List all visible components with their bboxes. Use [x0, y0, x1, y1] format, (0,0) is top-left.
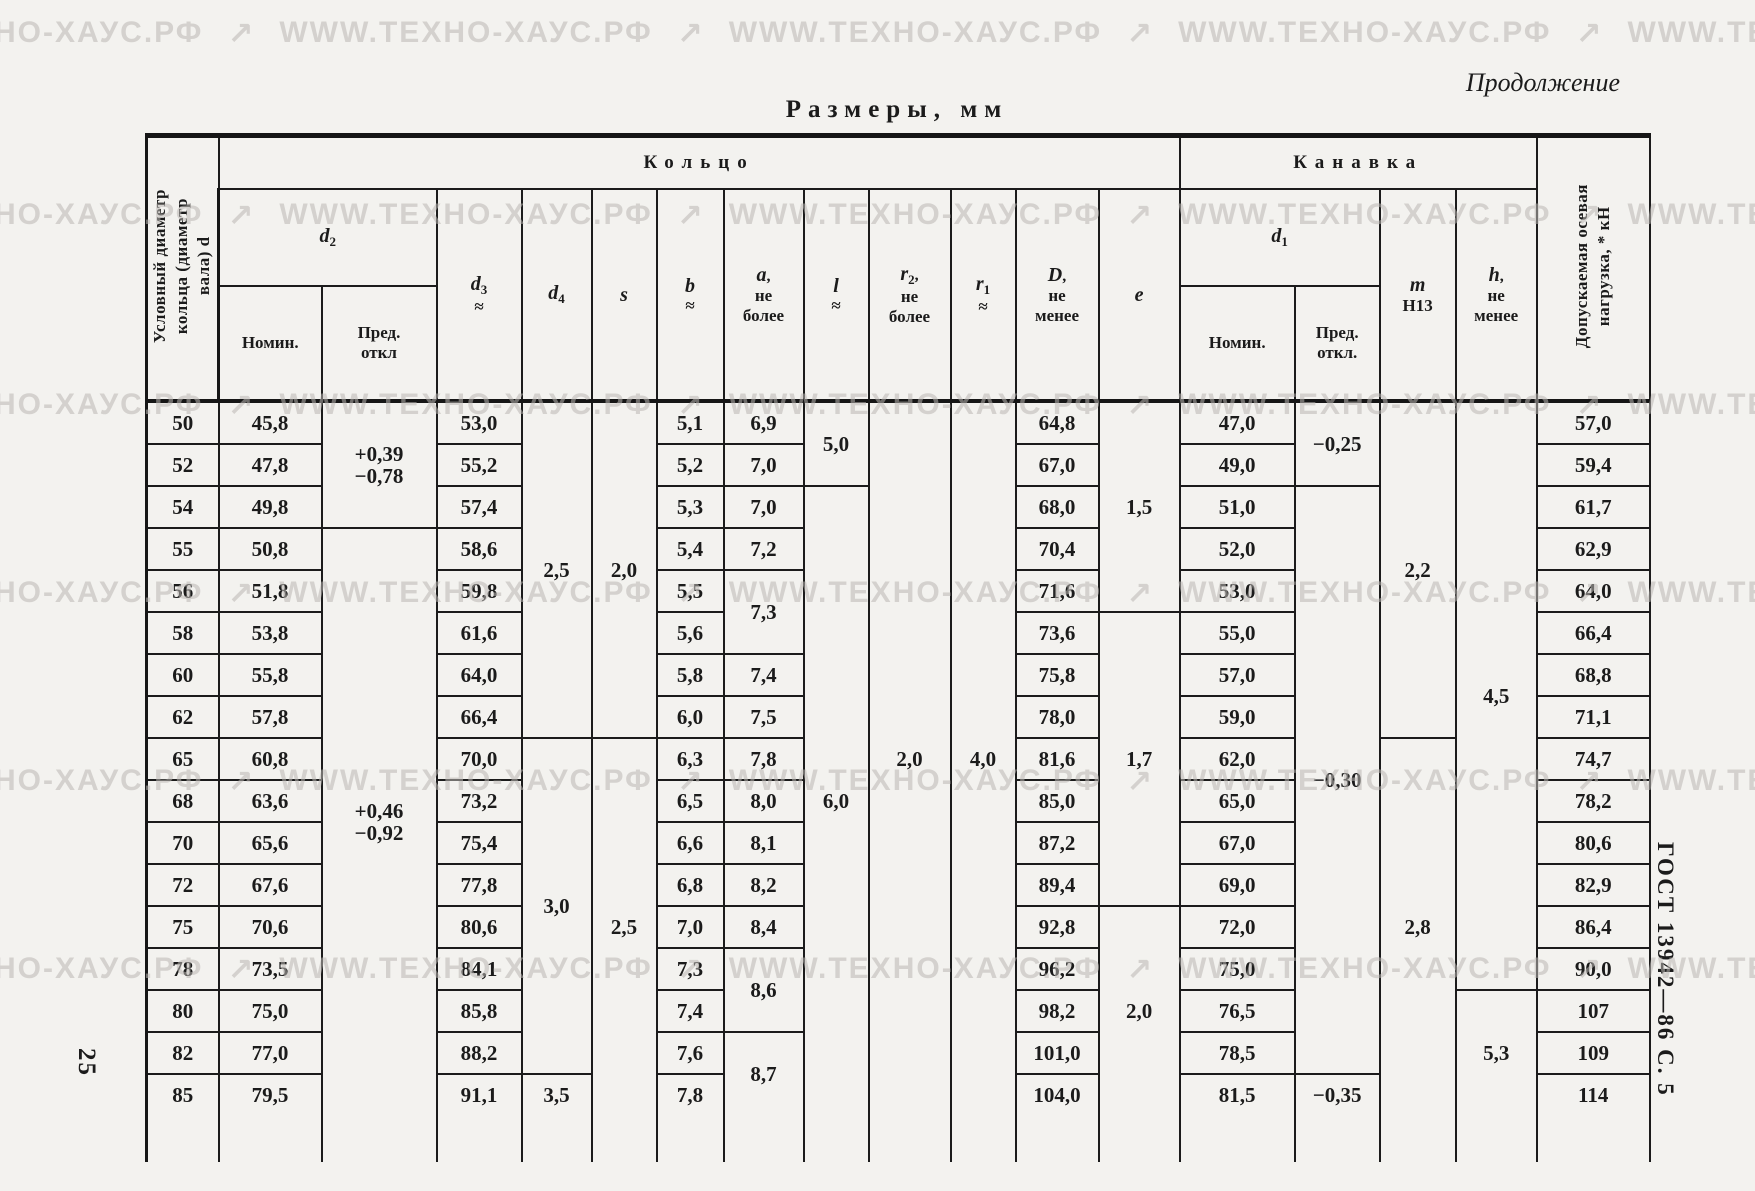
watermark-band: WWW.ТЕХНО-ХАУС.РФ↗WWW.ТЕХНО-ХАУС.РФ↗WWW.… [0, 14, 1755, 50]
table-filler-cell [951, 1115, 1016, 1162]
table-cell: 67,0 [1180, 822, 1295, 864]
table-cell: 55,2 [437, 444, 522, 486]
table-cell: 8,1 [724, 822, 804, 864]
table-cell: 49,8 [219, 486, 322, 528]
table-cell: 5,8 [657, 654, 724, 696]
table-filler-row [147, 1115, 1650, 1162]
table-cell: 89,4 [1016, 864, 1099, 906]
table-filler-cell [724, 1115, 804, 1162]
table-cell: 60,8 [219, 738, 322, 780]
table-cell: 73,5 [219, 948, 322, 990]
table-cell: 7,6 [657, 1032, 724, 1074]
col-header-a: a,не более [724, 189, 804, 401]
table-filler-cell [147, 1115, 219, 1162]
table-filler-cell [592, 1115, 657, 1162]
table-cell: 88,2 [437, 1032, 522, 1074]
table-cell: 2,8 [1380, 738, 1456, 1115]
table-cell: 67,0 [1016, 444, 1099, 486]
table-cell: 5,6 [657, 612, 724, 654]
table-cell: 77,8 [437, 864, 522, 906]
table-cell: 55,0 [1180, 612, 1295, 654]
table-cell: 5,2 [657, 444, 724, 486]
table-cell: 62,0 [1180, 738, 1295, 780]
corner-header-text: Условный диаметр кольца (диаметр вала) d [149, 189, 215, 343]
table-cell: 96,2 [1016, 948, 1099, 990]
table-cell: 70,4 [1016, 528, 1099, 570]
table-cell: 5,5 [657, 570, 724, 612]
table-cell: 70,0 [437, 738, 522, 780]
table-cell: 80,6 [437, 906, 522, 948]
table-cell: 73,6 [1016, 612, 1099, 654]
col-header-d2: d2 [219, 189, 437, 286]
table-cell: 1,7 [1099, 612, 1180, 906]
table-cell: 7,8 [724, 738, 804, 780]
table-cell: 77,0 [219, 1032, 322, 1074]
table-cell: 2,2 [1380, 401, 1456, 738]
table-cell: 7,3 [657, 948, 724, 990]
table-filler-cell [804, 1115, 869, 1162]
table-cell: 92,8 [1016, 906, 1099, 948]
watermark-separator-icon: ↗ [1126, 16, 1154, 52]
table-cell: 60 [147, 654, 219, 696]
col-header-d3: d3≈ [437, 189, 522, 401]
col-header-h: h,не менее [1456, 189, 1537, 401]
table-cell: 70 [147, 822, 219, 864]
watermark-text: WWW.ТЕХНО-ХАУС.РФ [0, 16, 203, 49]
col-header-r2: r2,не более [869, 189, 951, 401]
table-cell: 7,5 [724, 696, 804, 738]
table-cell: 7,8 [657, 1074, 724, 1115]
table-cell: 5,3 [657, 486, 724, 528]
table-cell: 62,9 [1537, 528, 1650, 570]
table-cell: 53,0 [437, 401, 522, 444]
table-cell: 80 [147, 990, 219, 1032]
col-header-deviation-groove: Пред. откл. [1295, 286, 1380, 401]
table-cell: 7,2 [724, 528, 804, 570]
table-cell: 68,0 [1016, 486, 1099, 528]
table-cell: 84,1 [437, 948, 522, 990]
table-cell: 70,6 [219, 906, 322, 948]
col-header-nominal-ring: Номин. [219, 286, 322, 401]
table-cell: 101,0 [1016, 1032, 1099, 1074]
table-cell: 104,0 [1016, 1074, 1099, 1115]
table-cell: 53,0 [1180, 570, 1295, 612]
table-cell: 66,4 [1537, 612, 1650, 654]
table-cell: 3,5 [522, 1074, 592, 1115]
table-cell: 78 [147, 948, 219, 990]
table-cell: 68 [147, 780, 219, 822]
table-filler-cell [322, 1115, 437, 1162]
col-header-d4: d4 [522, 189, 592, 401]
table-cell: 6,8 [657, 864, 724, 906]
table-cell: 66,4 [437, 696, 522, 738]
table-cell: 91,1 [437, 1074, 522, 1115]
table-cell: 5,1 [657, 401, 724, 444]
watermark-text: WWW.ТЕХНО-ХАУС.РФ [1627, 16, 1755, 49]
table-filler-cell [522, 1115, 592, 1162]
table-cell: 51,0 [1180, 486, 1295, 528]
table-cell: 55,8 [219, 654, 322, 696]
table-cell: 5,0 [804, 401, 869, 486]
watermark-separator-icon: ↗ [1575, 16, 1603, 52]
table-cell: 114 [1537, 1074, 1650, 1115]
table-cell: 82,9 [1537, 864, 1650, 906]
table-cell: 8,2 [724, 864, 804, 906]
table-cell: 4,0 [951, 401, 1016, 1115]
table-cell: 1,5 [1099, 401, 1180, 612]
table-filler-cell [1537, 1115, 1650, 1162]
table-cell: 52 [147, 444, 219, 486]
table-cell: 8,6 [724, 948, 804, 1032]
table-cell: 51,8 [219, 570, 322, 612]
table-filler-cell [1099, 1115, 1180, 1162]
col-header-l: l≈ [804, 189, 869, 401]
table-cell: −0,35 [1295, 1074, 1380, 1115]
table-cell: 68,8 [1537, 654, 1650, 696]
table-cell: 6,6 [657, 822, 724, 864]
col-header-nominal-groove: Номин. [1180, 286, 1295, 401]
table-cell: 85,8 [437, 990, 522, 1032]
table-cell: 73,2 [437, 780, 522, 822]
table-cell: 8,7 [724, 1032, 804, 1115]
table-cell: 59,8 [437, 570, 522, 612]
table-cell: 67,6 [219, 864, 322, 906]
col-header-b: b≈ [657, 189, 724, 401]
table-cell: 54 [147, 486, 219, 528]
table-filler-cell [1380, 1115, 1456, 1162]
table-cell: 4,5 [1456, 401, 1537, 990]
table-cell: 6,5 [657, 780, 724, 822]
table-cell: 64,0 [1537, 570, 1650, 612]
table-cell: 59,4 [1537, 444, 1650, 486]
table-cell: 85 [147, 1074, 219, 1115]
table-cell: 2,0 [869, 401, 951, 1115]
table-cell: 62 [147, 696, 219, 738]
table-cell: 2,5 [522, 401, 592, 738]
watermark-separator-icon: ↗ [227, 16, 255, 52]
table-filler-cell [437, 1115, 522, 1162]
continuation-label: Продолжение [1466, 68, 1620, 98]
table-cell: 7,0 [657, 906, 724, 948]
page-number: 25 [72, 1048, 100, 1077]
table-cell: 61,6 [437, 612, 522, 654]
group-header-groove: Канавка [1180, 136, 1537, 190]
col-header-deviation-ring: Пред. откл [322, 286, 437, 401]
table-cell: 75 [147, 906, 219, 948]
table-cell: 85,0 [1016, 780, 1099, 822]
corner-header-cell: Условный диаметр кольца (диаметр вала) d [147, 136, 219, 402]
table-cell: 75,0 [219, 990, 322, 1032]
table-cell: 98,2 [1016, 990, 1099, 1032]
table-cell: 53,8 [219, 612, 322, 654]
table-cell: 64,8 [1016, 401, 1099, 444]
dimensions-table: Условный диаметр кольца (диаметр вала) d… [145, 133, 1651, 1162]
table-cell: 76,5 [1180, 990, 1295, 1032]
watermark-text: WWW.ТЕХНО-ХАУС.РФ [279, 16, 652, 49]
load-header-cell: Допускаемая осевая нагрузка, * кН [1537, 136, 1650, 402]
table-cell: 86,4 [1537, 906, 1650, 948]
table-cell: 107 [1537, 990, 1650, 1032]
dimensions-table-wrapper: Условный диаметр кольца (диаметр вала) d… [145, 133, 1651, 1162]
doc-reference: ГОСТ 13942—86 С. 5 [1652, 842, 1678, 1122]
col-header-e: e [1099, 189, 1180, 401]
table-cell: 56 [147, 570, 219, 612]
table-cell: 71,1 [1537, 696, 1650, 738]
table-cell: 52,0 [1180, 528, 1295, 570]
table-cell: 8,0 [724, 780, 804, 822]
table-cell: 63,6 [219, 780, 322, 822]
table-cell: 2,0 [592, 401, 657, 738]
table-cell: 2,5 [592, 738, 657, 1115]
table-cell: 49,0 [1180, 444, 1295, 486]
col-header-D: D,не менее [1016, 189, 1099, 401]
table-filler-cell [219, 1115, 322, 1162]
table-cell: 7,0 [724, 444, 804, 486]
col-header-r1: r1≈ [951, 189, 1016, 401]
table-cell: +0,39−0,78 [322, 401, 437, 528]
table-cell: 61,7 [1537, 486, 1650, 528]
table-cell: 109 [1537, 1032, 1650, 1074]
col-header-d1: d1 [1180, 189, 1380, 286]
table-cell: 57,0 [1180, 654, 1295, 696]
table-cell: 78,5 [1180, 1032, 1295, 1074]
load-header-text: Допускаемая осевая нагрузка, * кН [1571, 184, 1615, 348]
group-header-ring: Кольцо [219, 136, 1180, 190]
table-cell: 47,0 [1180, 401, 1295, 444]
table-cell: 2,0 [1099, 906, 1180, 1115]
table-cell: 74,7 [1537, 738, 1650, 780]
table-cell: +0,46−0,92 [322, 528, 437, 1115]
table-cell: 6,0 [804, 486, 869, 1115]
table-cell: 75,0 [1180, 948, 1295, 990]
table-cell: 50,8 [219, 528, 322, 570]
table-filler-cell [869, 1115, 951, 1162]
table-cell: −0,30 [1295, 486, 1380, 1074]
table-cell: 64,0 [437, 654, 522, 696]
table-cell: 58 [147, 612, 219, 654]
table-cell: 69,0 [1180, 864, 1295, 906]
table-cell: 50 [147, 401, 219, 444]
table-cell: 58,6 [437, 528, 522, 570]
table-cell: 82 [147, 1032, 219, 1074]
table-filler-cell [1180, 1115, 1295, 1162]
table-cell: 59,0 [1180, 696, 1295, 738]
watermark-text: WWW.ТЕХНО-ХАУС.РФ [1178, 16, 1551, 49]
watermark-text: WWW.ТЕХНО-ХАУС.РФ [729, 16, 1102, 49]
table-cell: 81,5 [1180, 1074, 1295, 1115]
table-cell: 80,6 [1537, 822, 1650, 864]
table-row: 5045,8+0,39−0,7853,02,52,05,16,95,02,04,… [147, 401, 1650, 444]
table-cell: 65 [147, 738, 219, 780]
table-cell: 7,0 [724, 486, 804, 528]
table-cell: 7,4 [657, 990, 724, 1032]
table-cell: 65,0 [1180, 780, 1295, 822]
table-cell: 8,4 [724, 906, 804, 948]
table-cell: 47,8 [219, 444, 322, 486]
table-cell: −0,25 [1295, 401, 1380, 486]
table-cell: 87,2 [1016, 822, 1099, 864]
table-cell: 55 [147, 528, 219, 570]
table-cell: 57,8 [219, 696, 322, 738]
table-cell: 6,9 [724, 401, 804, 444]
table-cell: 45,8 [219, 401, 322, 444]
table-filler-cell [657, 1115, 724, 1162]
table-cell: 7,3 [724, 570, 804, 654]
table-cell: 90,0 [1537, 948, 1650, 990]
table-cell: 6,3 [657, 738, 724, 780]
table-filler-cell [1016, 1115, 1099, 1162]
table-title: Размеры, мм [697, 96, 1097, 124]
table-cell: 5,4 [657, 528, 724, 570]
table-cell: 57,4 [437, 486, 522, 528]
table-filler-cell [1295, 1115, 1380, 1162]
table-cell: 81,6 [1016, 738, 1099, 780]
table-cell: 72,0 [1180, 906, 1295, 948]
col-header-s: s [592, 189, 657, 401]
table-cell: 71,6 [1016, 570, 1099, 612]
table-body: 5045,8+0,39−0,7853,02,52,05,16,95,02,04,… [147, 401, 1650, 1162]
table-cell: 6,0 [657, 696, 724, 738]
watermark-separator-icon: ↗ [677, 16, 705, 52]
table-cell: 5,3 [1456, 990, 1537, 1115]
table-filler-cell [1456, 1115, 1537, 1162]
table-cell: 78,2 [1537, 780, 1650, 822]
table-cell: 57,0 [1537, 401, 1650, 444]
table-cell: 78,0 [1016, 696, 1099, 738]
table-cell: 7,4 [724, 654, 804, 696]
table-cell: 72 [147, 864, 219, 906]
table-cell: 75,4 [437, 822, 522, 864]
table-cell: 79,5 [219, 1074, 322, 1115]
col-header-m: mН13 [1380, 189, 1456, 401]
table-cell: 75,8 [1016, 654, 1099, 696]
table-cell: 3,0 [522, 738, 592, 1074]
table-cell: 65,6 [219, 822, 322, 864]
